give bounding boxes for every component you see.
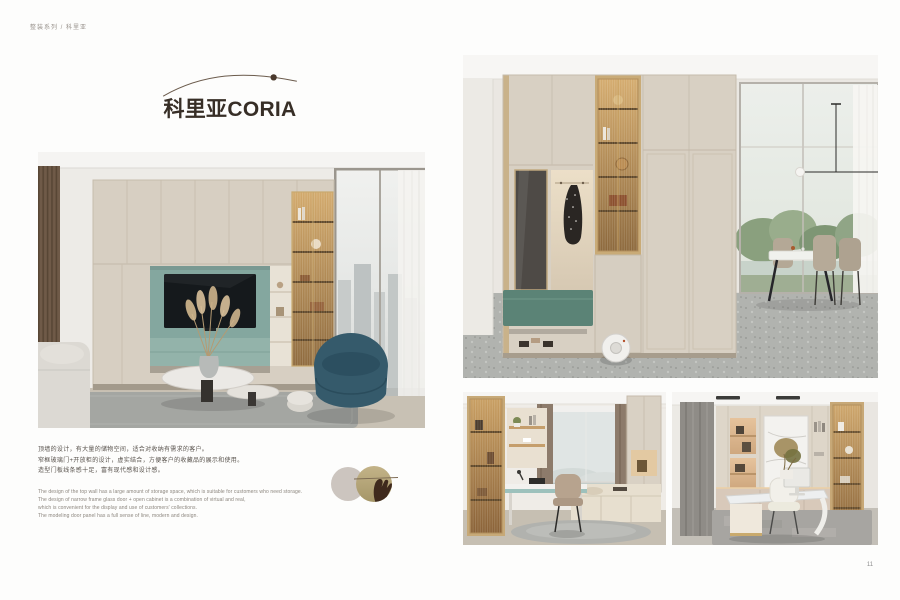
display-cabinet [292,192,334,366]
breadcrumb: 整装系列 / 科里亚 [30,22,87,31]
arc-dot [270,74,276,80]
open-shelves [507,408,547,468]
mirror [515,170,547,290]
description-line-cn: 顶墙的设计，有大量的储物空间，适合对收纳有需求的客户。 [38,445,348,456]
description-cn: 顶墙的设计，有大量的储物空间，适合对收纳有需求的客户。 窄框玻璃门+开放柜的设计… [38,445,348,477]
coat-niche [551,170,593,310]
description-line-cn: 造型门板线条感十足，富有现代感和设计感。 [38,466,348,477]
series-title-block: 科里亚CORIA [145,72,315,120]
catalog-page: 整装系列 / 科里亚 科里亚CORIA [0,0,900,600]
entry-cabinet-wall [503,75,736,358]
bay-window [537,404,633,492]
page-number: 11 [858,562,882,568]
sofa [38,342,90,428]
page-title: 科里亚CORIA [145,99,315,120]
glass-display-cabinet [467,396,505,536]
title-cn: 科里亚 [163,98,227,121]
description-block: 顶墙的设计，有大量的储物空间，适合对收纳有需求的客户。 窄框玻璃门+开放柜的设计… [38,445,348,520]
description-line-en: which is convenient for the display and … [38,504,348,512]
description-line-cn: 窄框玻璃门+开放柜的设计，虚实结合，方便客户的收藏品的展示和使用。 [38,456,348,467]
title-en: CORIA [227,98,296,121]
description-line-en: The design of the top wall has a large a… [38,488,348,496]
hand-circles-ornament [330,462,400,508]
ac-vent [776,396,800,400]
side-cabinet [627,396,661,492]
glass-display-column [595,75,641,353]
ac-vent [716,396,740,400]
arc-ornament [155,72,305,98]
photo-entry-hall-cabinet [463,55,878,378]
photo-living-room-tv-wall [38,152,425,428]
photo-home-office [672,392,878,545]
curtain [680,402,714,536]
description-en: The design of the top wall has a large a… [38,488,348,520]
photo-study-tatami-room [463,392,666,545]
description-line-en: The design of narrow frame glass door + … [38,496,348,504]
description-line-en: The modeling door panel has a full sense… [38,512,348,520]
